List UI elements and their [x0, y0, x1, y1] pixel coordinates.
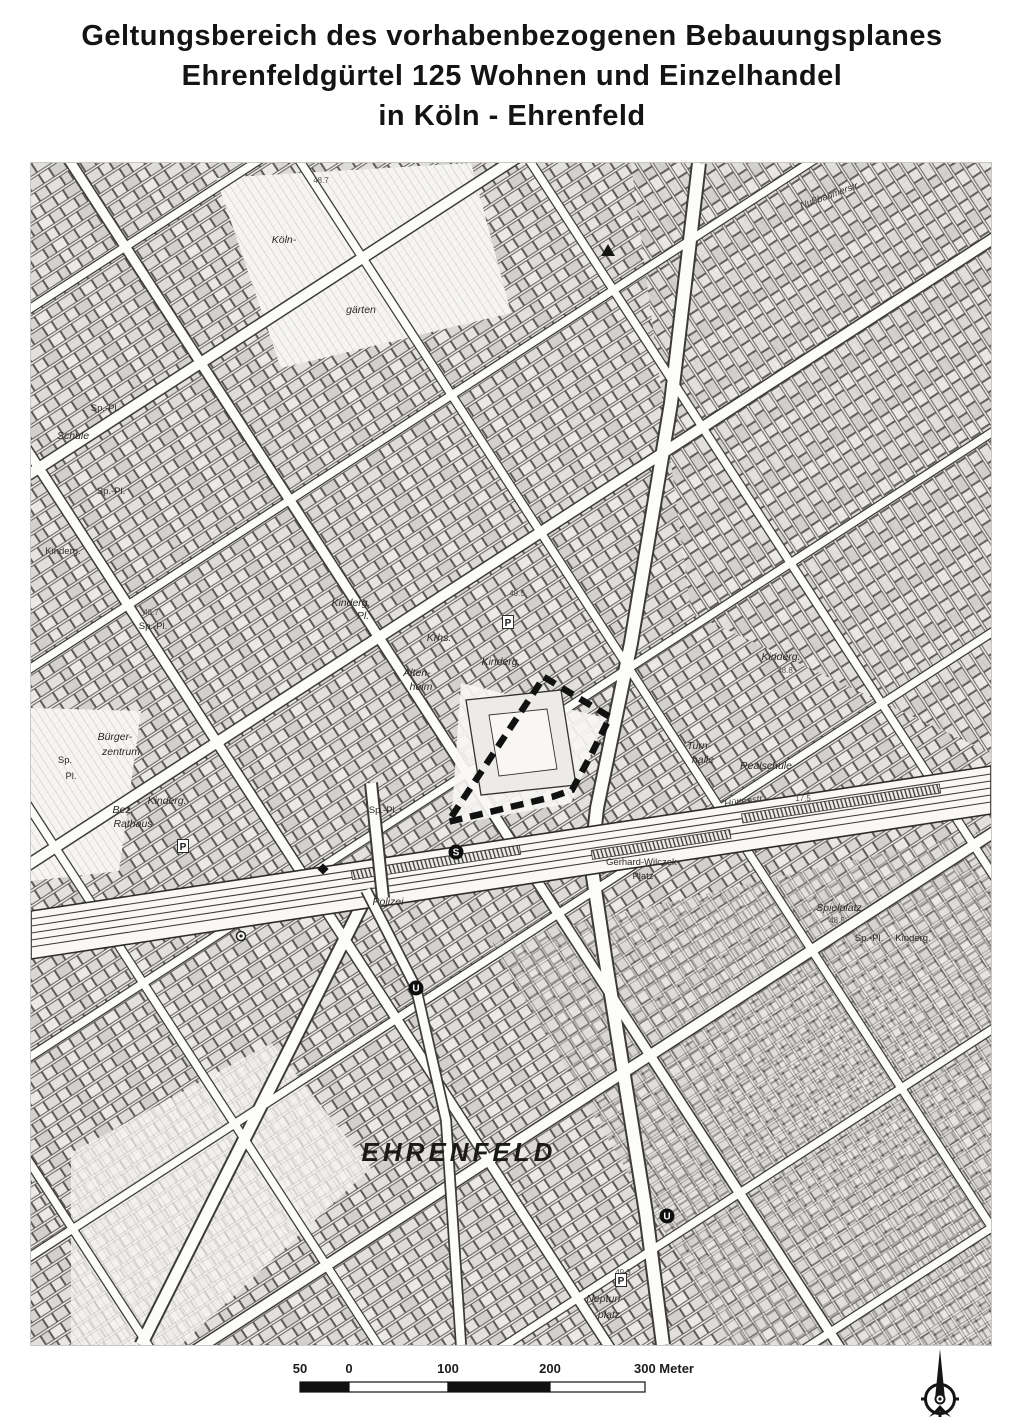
- map-label: EHRENFELD: [362, 1137, 557, 1167]
- map-label: Realschule: [740, 760, 792, 772]
- map-label: Kinderg.: [895, 933, 930, 944]
- map-label: Schule: [57, 430, 89, 442]
- map-label: Krhs.: [427, 632, 452, 644]
- station-letter: U: [412, 984, 419, 995]
- title-line-2: Ehrenfeldgürtel 125 Wohnen und Einzelhan…: [0, 56, 1024, 96]
- map-label: platz: [597, 1309, 621, 1321]
- map-label: Polizei: [373, 896, 405, 908]
- map-label: Sp.-Pl.: [91, 403, 120, 414]
- map-label: 48.5: [829, 916, 845, 925]
- title-block: Geltungsbereich des vorhabenbezogenen Be…: [0, 16, 1024, 136]
- map-label: heim: [410, 681, 433, 693]
- map-label: Kinderg.: [331, 597, 370, 609]
- map-label: Kinderg.: [761, 651, 800, 663]
- map-label: Sp.-Pl.: [97, 486, 126, 497]
- map-label: 49.5: [509, 589, 525, 598]
- map-label: Pl.: [65, 771, 76, 782]
- station-letter: S: [453, 848, 460, 859]
- map-label: Pl.: [357, 610, 369, 622]
- north-arrow-icon: [905, 1347, 975, 1417]
- map-footer: 500100200300 Meter: [0, 1349, 1024, 1417]
- station-letter: U: [663, 1212, 670, 1223]
- scale-bar-label: 100: [437, 1361, 459, 1376]
- stop-icon-dot: [239, 934, 242, 937]
- scale-bar-label: 200: [539, 1361, 561, 1376]
- map-label: Bürger-: [98, 731, 133, 743]
- scale-bar: 500100200300 Meter: [0, 1349, 1024, 1417]
- map-label: Neptun-: [586, 1293, 624, 1305]
- map-label: Alten-: [402, 667, 431, 679]
- scale-bar-segment: [349, 1382, 448, 1392]
- map-label: Sp.-Pl.: [369, 805, 398, 816]
- map-label: Kinderg.: [45, 546, 80, 557]
- map-label: Kinderg.: [481, 656, 520, 668]
- map-label: Platz: [632, 871, 653, 882]
- map-label: 17.5: [795, 794, 811, 803]
- scale-bar-segment: [550, 1382, 645, 1392]
- map-label: Köln-: [272, 234, 297, 246]
- map-label: 48.8: [777, 666, 793, 675]
- parking-letter: P: [180, 842, 187, 853]
- page: { "title": { "line1": "Geltungsbereich d…: [0, 0, 1024, 1417]
- map-label: Sp.: [58, 755, 72, 766]
- map-label: zentrum: [101, 746, 140, 758]
- scale-bar-label: 50: [293, 1361, 307, 1376]
- map-label: Gerhard-Wilczek-: [606, 857, 680, 868]
- map-label: halle: [692, 754, 714, 766]
- parking-letter: P: [505, 618, 512, 629]
- map-label: Turn-: [687, 740, 712, 752]
- title-line-1: Geltungsbereich des vorhabenbezogenen Be…: [0, 16, 1024, 56]
- scale-bar-segment: [300, 1382, 349, 1392]
- scale-bar-segment: [448, 1382, 550, 1392]
- scale-bar-label: 0: [345, 1361, 352, 1376]
- scale-bar-label: 300 Meter: [634, 1361, 694, 1376]
- parking-letter: P: [618, 1276, 625, 1287]
- map-label: Sp.-Pl.: [855, 933, 884, 944]
- map-label: gärten: [346, 304, 376, 316]
- map-label: 48.7: [313, 176, 329, 185]
- map-label: Kinderg.: [147, 795, 186, 807]
- map-label: 48.7: [143, 608, 159, 617]
- title-line-3: in Köln - Ehrenfeld: [0, 96, 1024, 136]
- map-label: Spielplatz: [816, 902, 862, 914]
- map-label: Rathaus: [113, 818, 153, 830]
- map-label: Bez.: [112, 804, 133, 816]
- map-label: Sp.-Pl.: [139, 621, 168, 632]
- map-canvas: Köln-gärten48.7Nußbaumerstr.EHRENFELDGer…: [31, 163, 991, 1345]
- city-map: Köln-gärten48.7Nußbaumerstr.EHRENFELDGer…: [30, 162, 992, 1346]
